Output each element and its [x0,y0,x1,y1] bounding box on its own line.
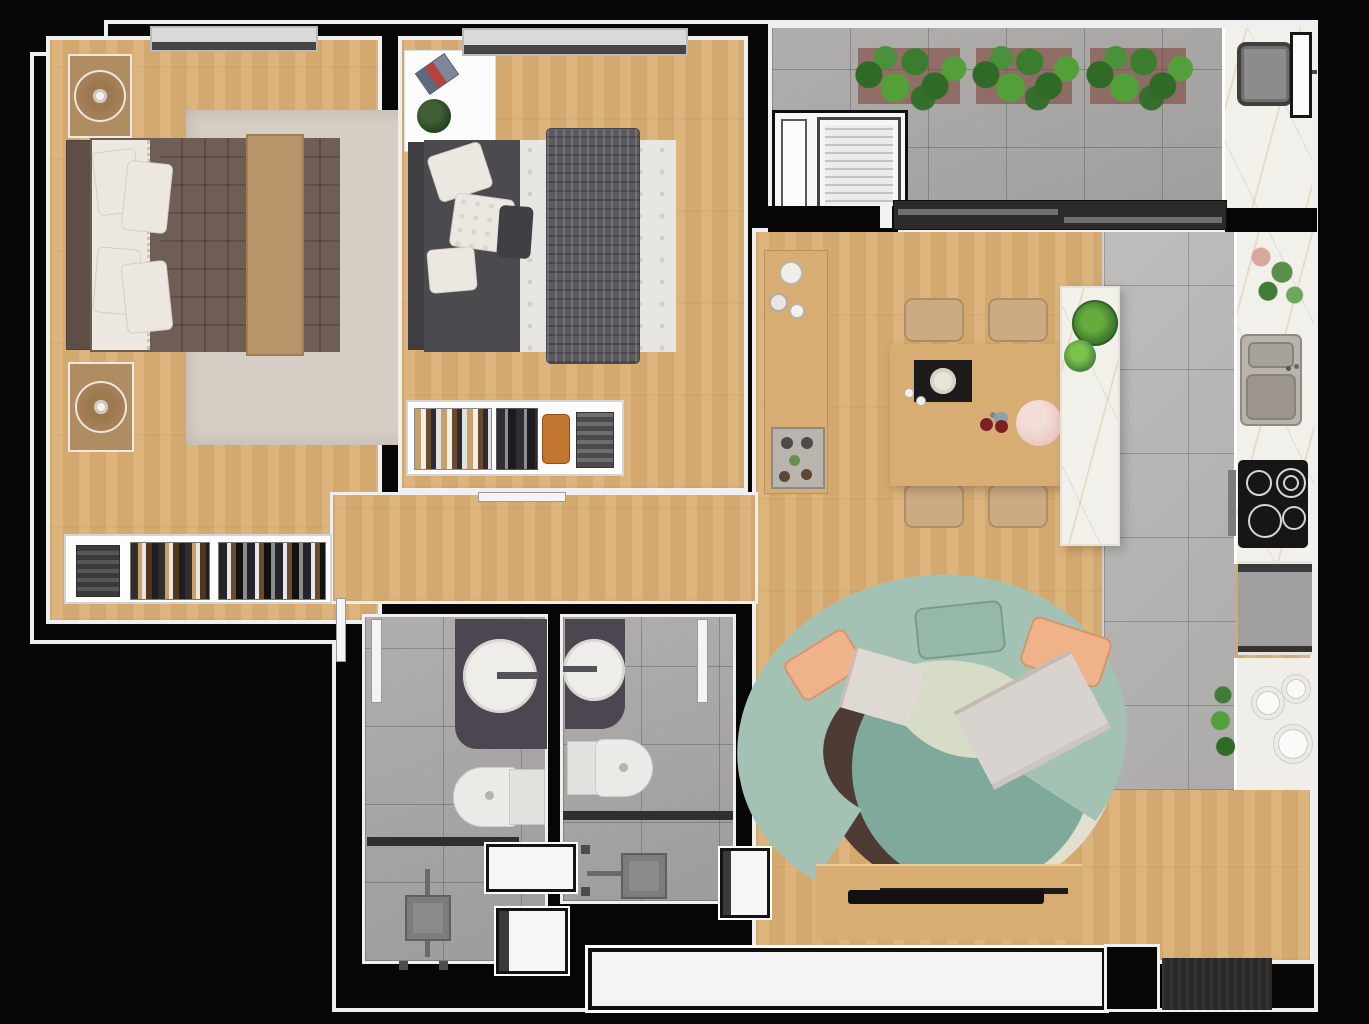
b2-garment-bag [496,408,538,470]
door-b [496,908,568,974]
plate-3 [1273,724,1313,764]
b2-door-leaf [478,492,566,502]
b2b-ctrl-1 [581,845,590,854]
master-pillow-4 [120,260,173,334]
b2-item-orange [542,414,570,464]
vase-3 [789,303,805,319]
slider-jamb [880,202,892,228]
outline-left [30,52,34,644]
balcony-wall-east [1225,208,1317,232]
red-bowl-2 [995,420,1008,433]
b2-closet [406,400,624,476]
b2-pillow-dark [496,205,534,259]
chair-3 [904,484,964,528]
wall-stub-entry [1104,944,1160,1012]
planter-2 [968,36,1080,122]
b2-basket [576,412,614,468]
bathroom-2 [560,614,736,904]
door-a [486,844,576,892]
red-bowl-1 [980,418,993,431]
cooktop [1238,460,1308,548]
vase-2 [769,293,788,312]
b2-pillow-3 [426,246,478,294]
master-bed-headboard [66,140,92,350]
tray-cup-4 [801,469,812,480]
burner-4 [1282,506,1306,530]
nightstand-1 [68,54,132,138]
tray-cup-1 [781,437,793,449]
b1-toilet-tank [509,769,545,825]
laundry-cabinet [781,119,807,211]
b2b-shower-rail [587,871,623,876]
dinner-plate [930,368,956,394]
closet-rack-2 [218,542,326,600]
planter-3 [1082,36,1194,122]
b1-ctrl-1 [399,961,408,970]
sofa [736,576,1128,906]
chair-1 [904,298,964,342]
burner-2 [1276,468,1306,498]
b1-flush [485,791,494,800]
plant-icon [1082,36,1194,122]
chair-2 [988,298,1048,342]
island-plant-2 [1064,340,1096,372]
b2-book [415,53,459,95]
sink-faucet [1286,366,1291,371]
coffee-tray [771,427,825,489]
b2-throw [546,128,640,364]
plate-2 [1281,674,1311,704]
bottom-window [588,948,1106,1010]
balcony-window [1290,32,1312,118]
b1-ctrl-2 [439,961,448,970]
b1-shower-head [405,895,451,941]
master-runner [246,134,304,356]
fridge [1238,564,1312,652]
lower-counter [1234,658,1314,790]
balcony-slider [893,200,1227,230]
b1-door-leaf [371,619,382,703]
chair-4 [988,484,1048,528]
b2-plant [417,99,451,133]
outline-west-lower [332,640,336,1012]
b2b-door-leaf [697,619,708,703]
master-door-leaf [336,598,346,662]
master-window [150,26,318,52]
b2-rack-1 [414,408,492,470]
sideboard [764,250,828,494]
b2b-toilet-tank [567,741,597,795]
kitchen-sink [1240,334,1302,426]
tray-plant [789,455,800,466]
slider-panel-2 [1064,217,1222,223]
b2-window [462,28,688,56]
closet-basket [76,545,120,597]
lamp-icon [75,381,127,433]
plant-icon [968,36,1080,122]
sofa-cushion-teal [914,600,1007,661]
nightstand-2 [68,362,134,452]
bbq-sink [1237,42,1293,106]
washing-machine [817,117,901,213]
counter-plant [1210,682,1236,768]
plate-1 [1251,686,1285,720]
b1-faucet [497,672,539,679]
hallway [330,492,758,604]
b2b-divider [563,811,733,820]
lamp-icon [74,70,126,122]
burner-1 [1246,470,1272,496]
sink-basin-large [1246,374,1296,420]
doormat [1162,958,1272,1010]
dining-table [890,344,1070,486]
tv [848,890,1044,904]
b2b-ctrl-2 [581,887,590,896]
cup-1 [904,388,914,398]
oven-handle [1228,470,1236,536]
master-pillow-2 [120,160,173,234]
closet-rack-1 [130,542,210,600]
b2-side-table [404,50,496,152]
outline-master-bottom [30,640,336,644]
vase-1 [779,261,803,285]
sink-basin-small [1248,342,1294,368]
b2b-faucet [563,666,597,672]
tray-cup-3 [779,471,790,482]
burner-3 [1248,504,1282,538]
island [1060,286,1120,546]
master-closet [64,534,332,604]
tray-cup-2 [801,437,813,449]
floor-plan [0,0,1369,1024]
balcony-wall-west [768,206,898,232]
door-c [720,848,770,918]
b2b-shower-head [621,853,667,899]
b2b-flush [619,763,628,772]
cup-2 [916,396,926,406]
pitcher [1016,400,1062,446]
slider-panel-1 [898,209,1058,215]
counter-flowers [1240,238,1310,314]
